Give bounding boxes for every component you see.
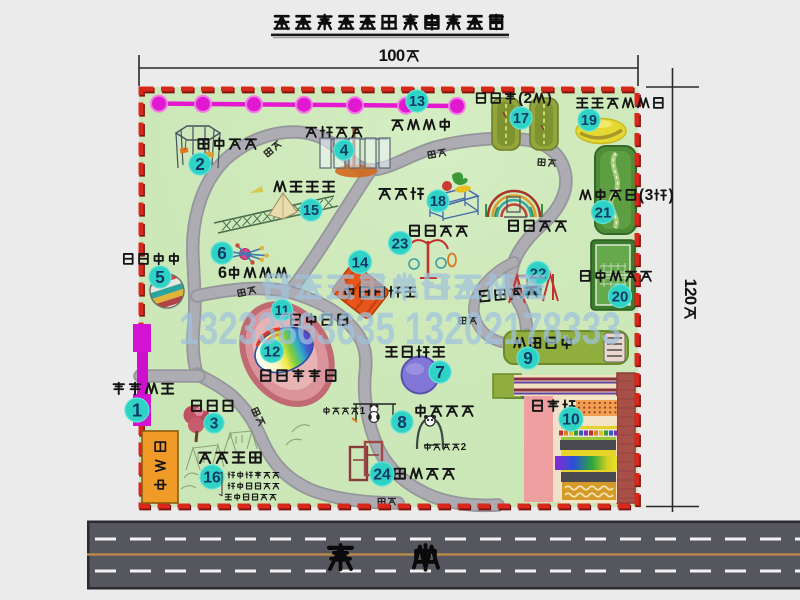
svg-text:7: 7 <box>435 363 445 382</box>
svg-text:6: 6 <box>217 244 227 263</box>
svg-text:21: 21 <box>595 204 612 221</box>
svg-text:19: 19 <box>581 113 597 129</box>
svg-text:): ) <box>547 90 552 107</box>
svg-text:16: 16 <box>203 470 221 487</box>
svg-text:10: 10 <box>562 412 580 429</box>
svg-text:1: 1 <box>360 406 366 417</box>
svg-text:6: 6 <box>218 264 227 282</box>
svg-text:2: 2 <box>195 155 205 174</box>
svg-text:15: 15 <box>303 203 319 219</box>
svg-text:13: 13 <box>409 94 425 110</box>
svg-text:3: 3 <box>210 416 219 433</box>
svg-text:23: 23 <box>392 235 409 252</box>
svg-text:120: 120 <box>681 279 700 306</box>
svg-text:24: 24 <box>373 467 391 484</box>
svg-text:13233863635 13202178333: 13233863635 13202178333 <box>179 303 621 354</box>
svg-text:(2: (2 <box>518 90 532 107</box>
svg-text:1: 1 <box>132 400 142 421</box>
svg-text:18: 18 <box>430 194 446 210</box>
svg-text:8: 8 <box>397 413 407 432</box>
svg-text:): ) <box>669 187 674 204</box>
svg-text:14: 14 <box>352 254 369 271</box>
svg-text:100: 100 <box>379 46 406 65</box>
svg-text:2: 2 <box>461 442 466 453</box>
svg-text:5: 5 <box>155 268 165 287</box>
svg-text:17: 17 <box>513 111 529 127</box>
svg-text:(3: (3 <box>639 187 654 204</box>
svg-text:4: 4 <box>340 143 349 160</box>
